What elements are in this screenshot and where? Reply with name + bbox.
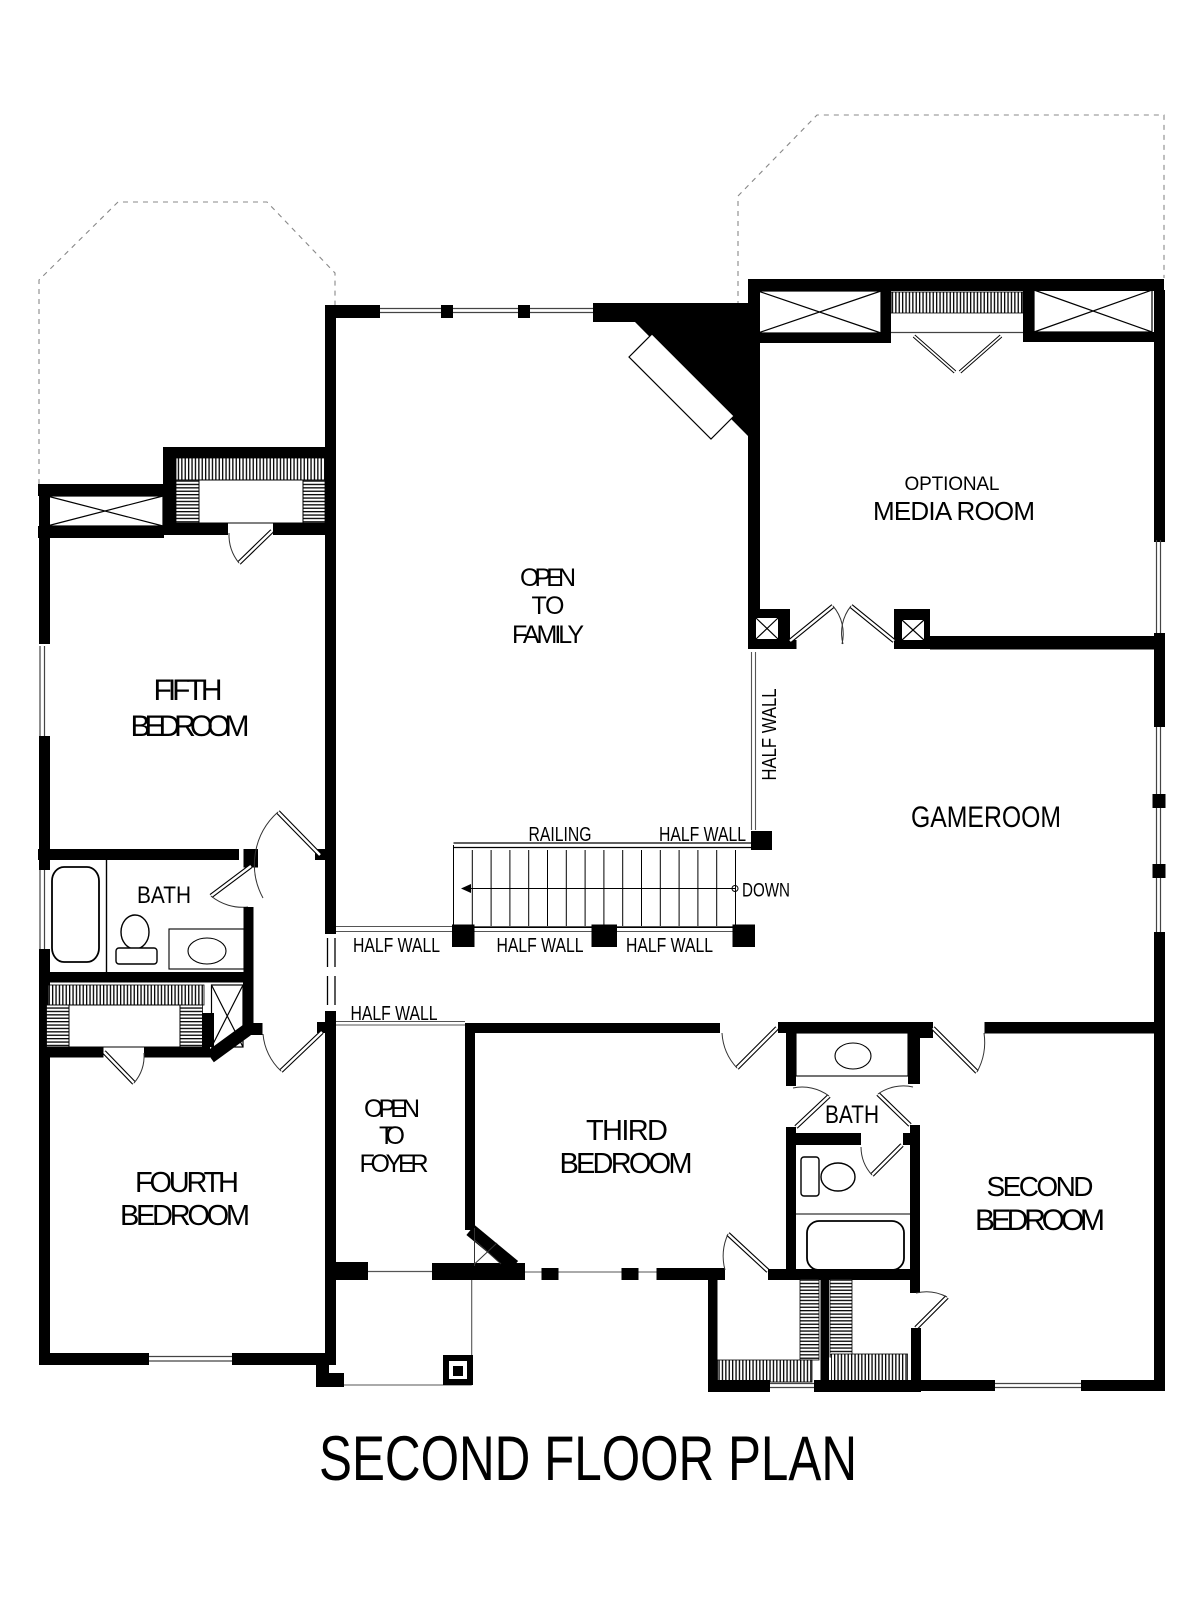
svg-text:DOWN: DOWN — [742, 881, 790, 902]
svg-text:HALF WALL: HALF WALL — [497, 935, 584, 957]
svg-text:FOYER: FOYER — [360, 1150, 429, 1178]
svg-text:TO: TO — [532, 592, 565, 620]
svg-text:FOURTH: FOURTH — [135, 1167, 239, 1199]
svg-text:THIRD: THIRD — [586, 1115, 668, 1147]
svg-text:BATH: BATH — [825, 1101, 879, 1129]
svg-text:SECOND FLOOR PLAN: SECOND FLOOR PLAN — [319, 1424, 857, 1494]
svg-text:HALF WALL: HALF WALL — [351, 1003, 438, 1025]
svg-text:BATH: BATH — [137, 882, 191, 909]
svg-text:TO: TO — [379, 1122, 405, 1150]
svg-text:HALF WALL: HALF WALL — [353, 935, 440, 957]
svg-text:GAMEROOM: GAMEROOM — [911, 801, 1061, 834]
svg-text:BEDROOM: BEDROOM — [560, 1148, 693, 1180]
svg-text:HALF WALL: HALF WALL — [626, 935, 713, 957]
svg-text:MEDIA ROOM: MEDIA ROOM — [873, 496, 1035, 526]
svg-text:OPEN: OPEN — [364, 1095, 420, 1123]
svg-text:OPTIONAL: OPTIONAL — [905, 474, 1000, 495]
svg-text:RAILING: RAILING — [529, 824, 592, 846]
svg-text:SECOND: SECOND — [987, 1171, 1094, 1202]
svg-text:OPEN: OPEN — [520, 564, 576, 592]
svg-text:BEDROOM: BEDROOM — [975, 1204, 1105, 1237]
svg-text:BEDROOM: BEDROOM — [131, 710, 250, 743]
svg-text:HALF WALL: HALF WALL — [759, 689, 781, 781]
svg-text:FAMILY: FAMILY — [512, 621, 584, 649]
svg-text:HALF WALL: HALF WALL — [659, 824, 746, 846]
svg-text:FIFTH: FIFTH — [154, 674, 223, 707]
svg-text:BEDROOM: BEDROOM — [120, 1200, 250, 1232]
